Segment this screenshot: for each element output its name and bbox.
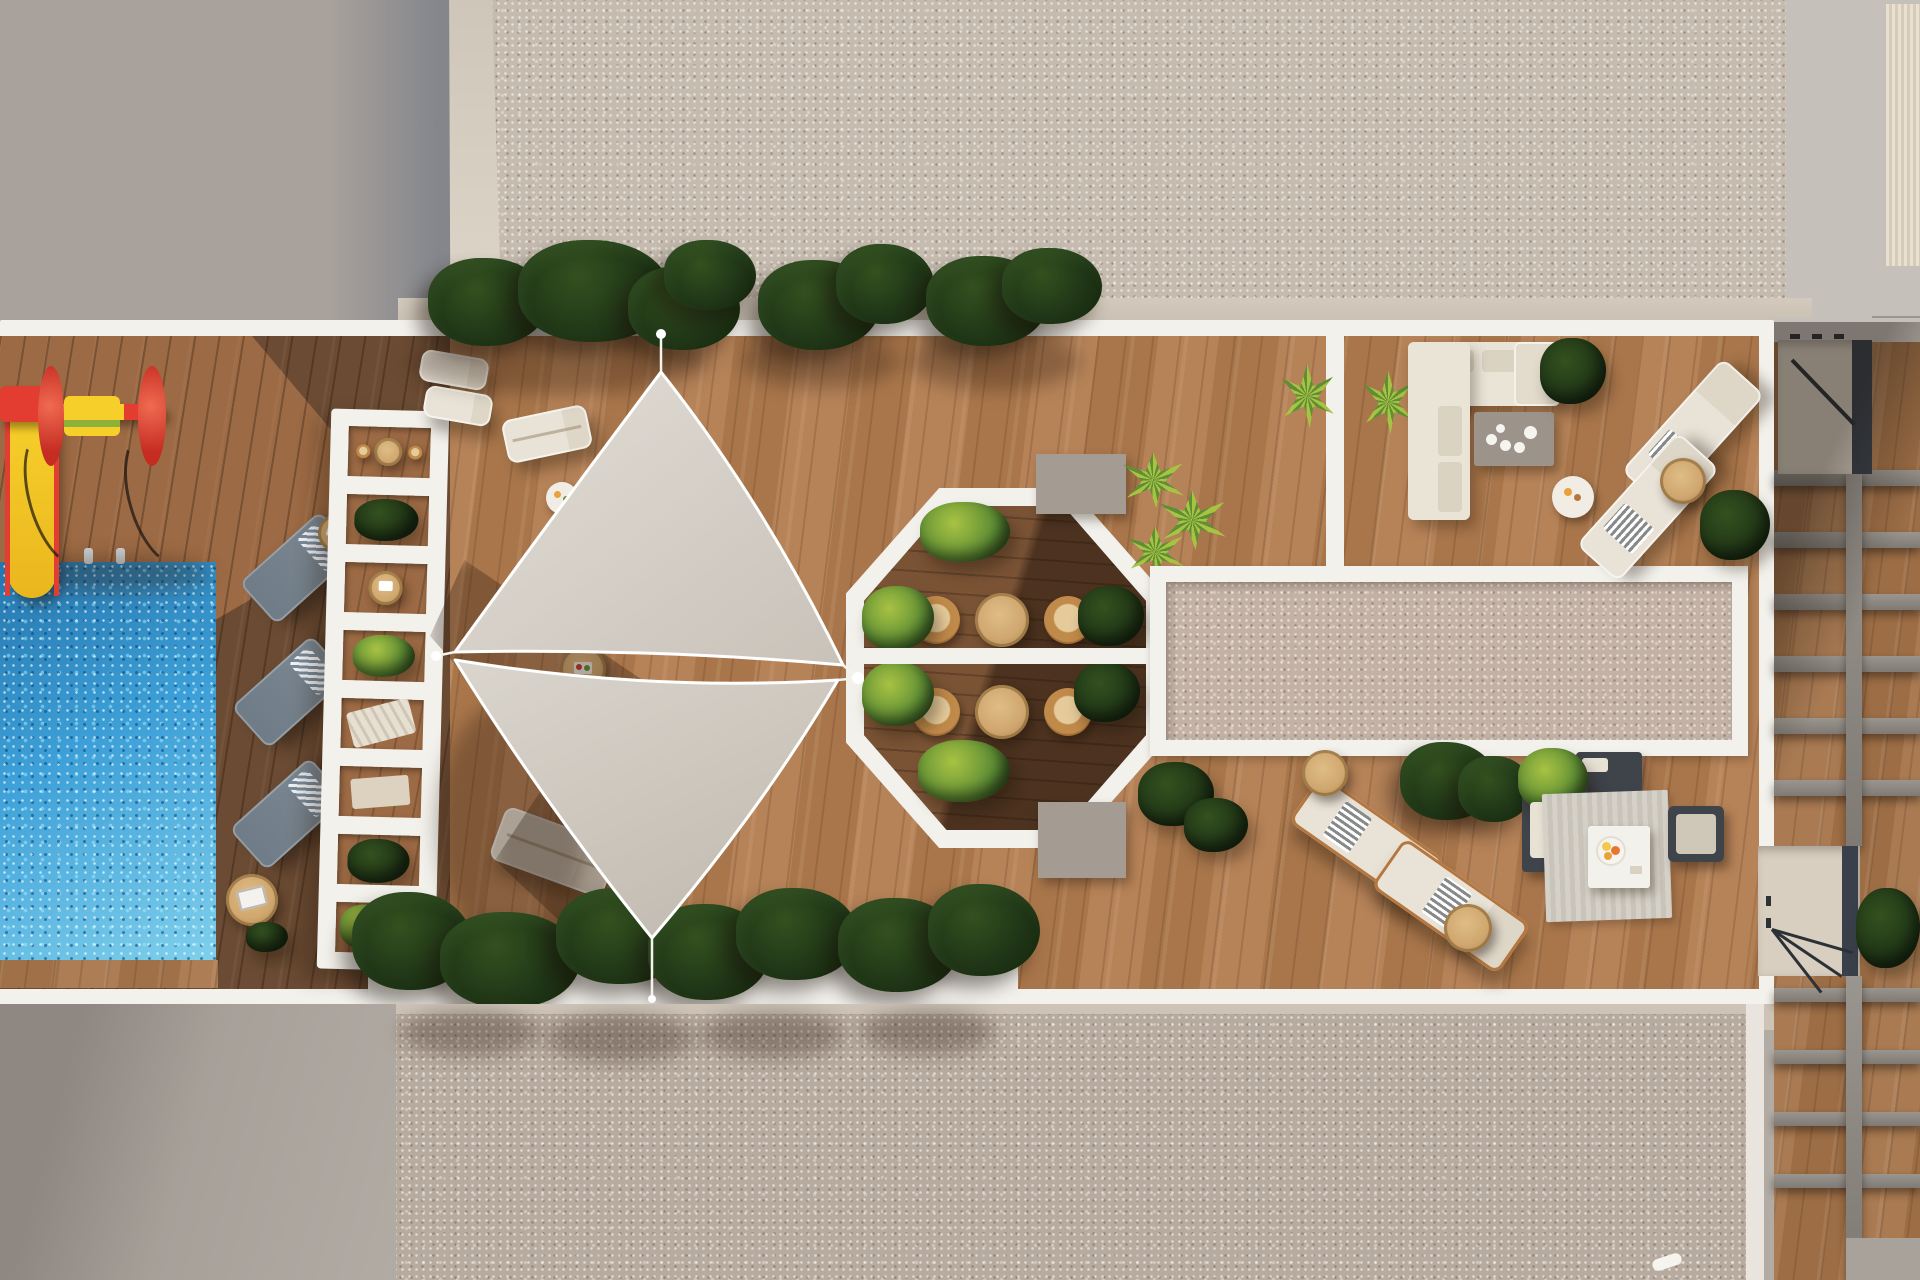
skylight-panel-gravel	[1166, 582, 1732, 740]
pergola-cell-plant	[342, 630, 425, 682]
plate	[1486, 434, 1497, 445]
cell-table	[374, 438, 403, 467]
armchair-cushion	[1676, 814, 1716, 854]
sofa-left-section	[1408, 342, 1470, 520]
round-side-table	[1444, 904, 1492, 952]
playground-slide-rail	[5, 414, 10, 596]
pergola-cell-mat	[339, 766, 422, 818]
planter-cast-shadow	[400, 1010, 540, 1056]
utility-square	[1038, 802, 1126, 878]
tray-item	[563, 496, 569, 502]
white-pergola-planter	[317, 409, 450, 972]
lounger-towel	[1322, 801, 1372, 854]
sofa-pillow	[1438, 406, 1462, 456]
pergola-cell-table	[344, 562, 427, 614]
planter-cast-shadow	[545, 1014, 695, 1062]
pergola-cell-plant	[337, 834, 420, 886]
neighbor-roof-shadow	[1774, 322, 1920, 792]
tree-cluster	[836, 244, 934, 324]
cell-chair	[408, 446, 422, 460]
tree-cluster	[664, 240, 756, 310]
bistro-table	[975, 685, 1029, 739]
lounger-towel	[1602, 503, 1654, 555]
planter-cast-shadow	[860, 1010, 995, 1054]
planter-plant	[928, 884, 1040, 976]
plate	[1524, 426, 1537, 439]
table-item	[1564, 488, 1572, 496]
pool-deck-strip	[0, 960, 218, 988]
octagon-divider-rail	[850, 648, 1164, 664]
tray-item	[554, 491, 561, 498]
rooftop-render	[0, 0, 1920, 1280]
plate	[1500, 440, 1511, 451]
plate	[1496, 424, 1505, 433]
striped-awning-strip	[1886, 4, 1920, 266]
plate	[1514, 442, 1525, 453]
fruit	[1602, 842, 1611, 851]
stair-rail-tick	[1766, 896, 1771, 906]
cell-bush	[352, 634, 415, 678]
lounger-frame-line	[512, 425, 581, 442]
fruit	[1604, 852, 1612, 860]
pergola-cell-bistro	[348, 426, 431, 478]
deck-divider-rail	[1326, 336, 1344, 566]
table-item	[1574, 494, 1581, 501]
fruit	[1611, 846, 1620, 855]
concrete-roof-bottom-left	[0, 1004, 396, 1280]
magazine	[236, 885, 268, 911]
cell-bush	[354, 498, 419, 542]
neighbor-roof-corner	[1846, 1238, 1920, 1280]
cell-bush	[347, 838, 410, 884]
tray-table	[546, 482, 578, 514]
bistro-table	[975, 593, 1029, 647]
pergola-cell-plant	[346, 494, 429, 546]
utility-square	[1036, 454, 1126, 514]
pergola-cell-folded-lounger	[340, 698, 423, 750]
sofa-pillow	[1438, 462, 1462, 512]
white-edge-strip	[1746, 1004, 1764, 1280]
white-side-table	[1552, 476, 1594, 518]
cream-mat	[350, 775, 410, 809]
stair-rail-tick	[1766, 918, 1771, 928]
tree-cluster	[1002, 248, 1102, 324]
rattan-magazine-table	[226, 874, 278, 926]
dining-table	[1588, 826, 1650, 888]
swimming-pool	[0, 562, 216, 962]
folded-lounger	[346, 698, 417, 748]
cell-tray	[379, 581, 393, 591]
pergola-beam-vertical	[1846, 976, 1862, 1280]
round-side-table	[1660, 458, 1706, 504]
playground-spinner-hub	[64, 396, 120, 436]
concrete-roof-top-left	[0, 0, 452, 324]
dining-armchair	[1668, 806, 1724, 862]
round-side-table	[1302, 750, 1348, 796]
planter-cast-shadow	[700, 1012, 845, 1058]
napkin	[1630, 866, 1642, 874]
coffee-table	[1474, 412, 1554, 466]
stair-dark-frame	[1842, 846, 1858, 976]
cell-chair	[356, 444, 370, 458]
